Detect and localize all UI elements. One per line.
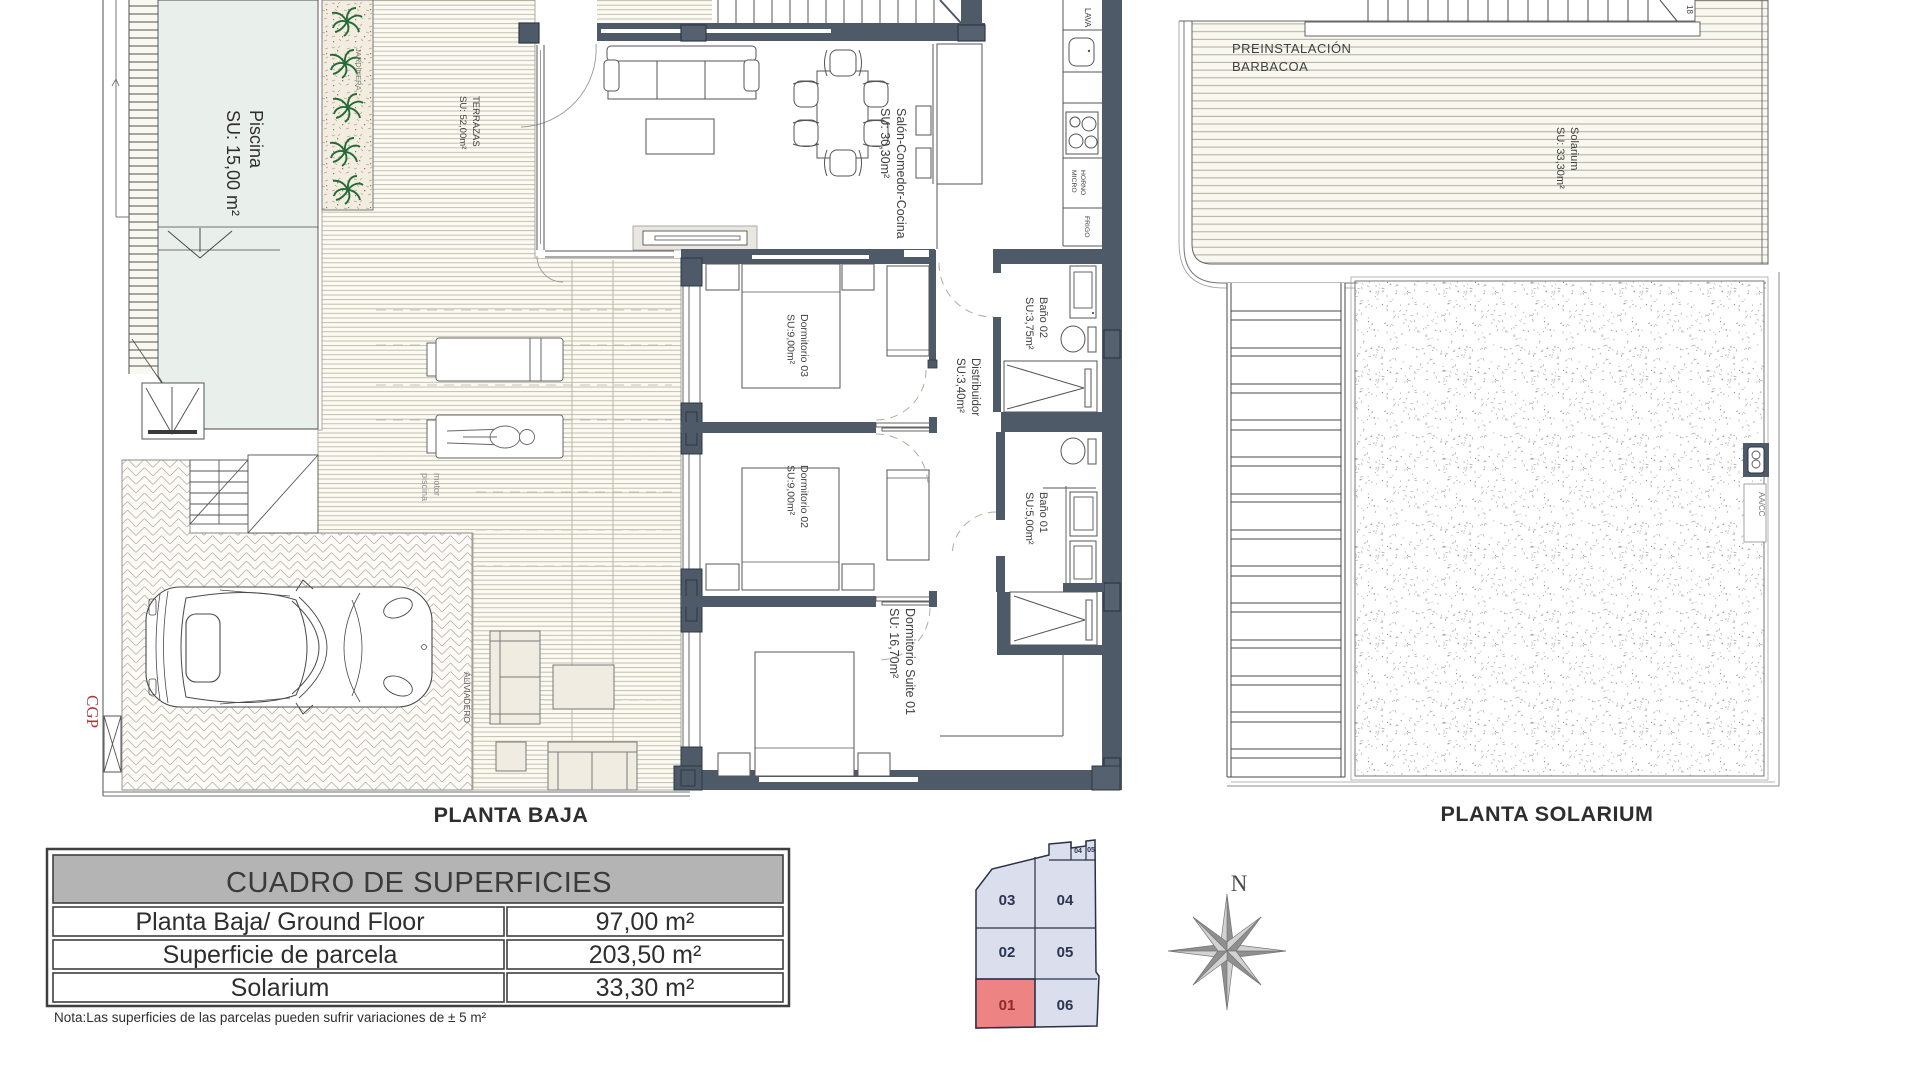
svg-text:05: 05 xyxy=(1057,944,1074,961)
svg-text:06: 06 xyxy=(1057,997,1074,1014)
svg-text:203,50 m²: 203,50 m² xyxy=(589,941,702,969)
svg-text:Superficie de parcela: Superficie de parcela xyxy=(163,941,398,969)
svg-text:PLANTA BAJA: PLANTA BAJA xyxy=(434,803,589,827)
svg-text:03: 03 xyxy=(999,892,1016,909)
svg-text:AA/CC: AA/CC xyxy=(1757,492,1766,517)
svg-text:Nota:Las superficies de las pa: Nota:Las superficies de las parcelas pue… xyxy=(54,1010,487,1025)
svg-text:97,00 m²: 97,00 m² xyxy=(596,908,695,936)
svg-text:LAVA: LAVA xyxy=(1083,8,1092,28)
svg-text:02: 02 xyxy=(999,944,1016,961)
svg-text:18: 18 xyxy=(1685,5,1694,14)
svg-text:PLANTA SOLARIUM: PLANTA SOLARIUM xyxy=(1441,802,1654,826)
svg-text:CGP: CGP xyxy=(83,695,102,728)
svg-text:33,30 m²: 33,30 m² xyxy=(596,974,695,1002)
svg-text:Solarium: Solarium xyxy=(231,974,330,1002)
svg-text:01: 01 xyxy=(999,997,1016,1014)
svg-text:CUADRO DE SUPERFICIES: CUADRO DE SUPERFICIES xyxy=(226,867,612,899)
svg-text:Planta Baja/ Ground Floor: Planta Baja/ Ground Floor xyxy=(135,908,424,936)
svg-text:05: 05 xyxy=(1087,847,1095,854)
svg-text:FRIGO: FRIGO xyxy=(1083,216,1090,238)
svg-text:04: 04 xyxy=(1074,848,1082,855)
svg-text:N: N xyxy=(1231,871,1248,896)
svg-text:JARDINERA: JARDINERA xyxy=(354,48,363,91)
svg-text:04: 04 xyxy=(1057,892,1074,909)
svg-text:BARBACOA: BARBACOA xyxy=(1232,59,1308,74)
svg-text:PREINSTALACIÓN: PREINSTALACIÓN xyxy=(1232,41,1351,56)
svg-text:ALIVIADERO: ALIVIADERO xyxy=(462,672,472,723)
